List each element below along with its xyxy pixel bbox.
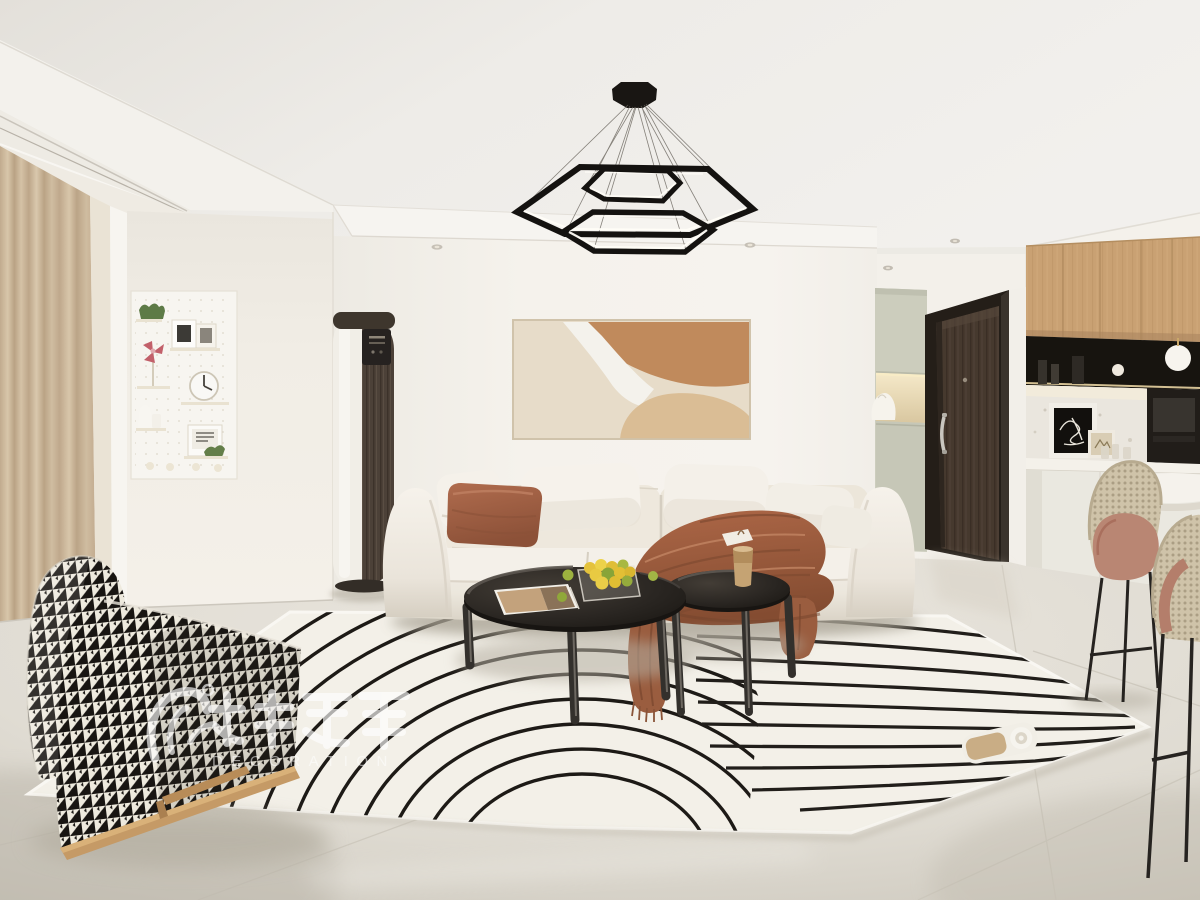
svg-text:DECORATION: DECORATION: [212, 753, 396, 770]
